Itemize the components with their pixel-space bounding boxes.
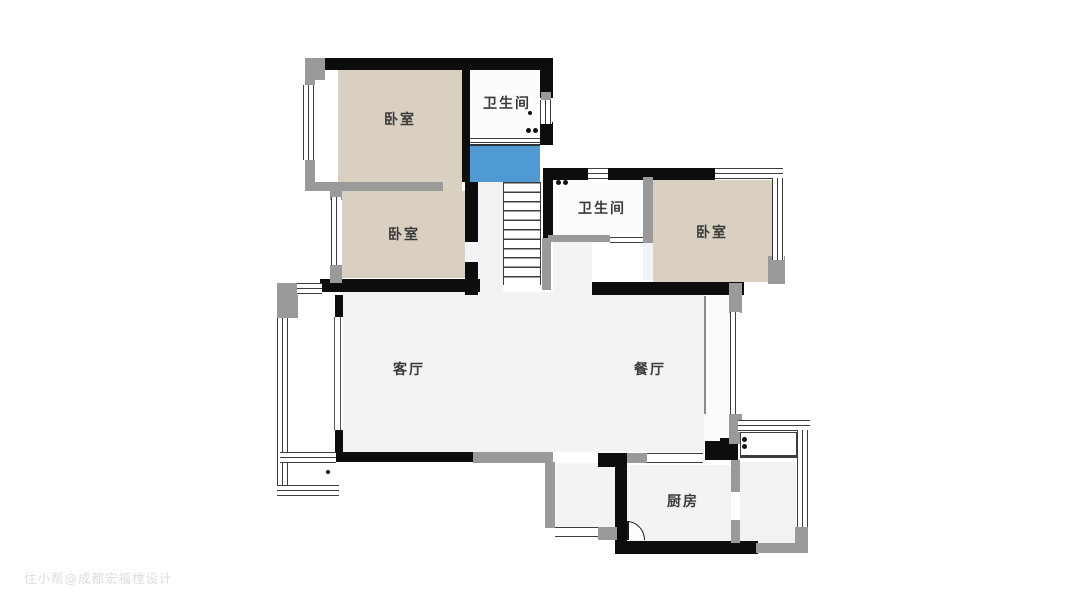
wall-segment — [305, 58, 325, 80]
balcony-divider — [280, 452, 336, 463]
window-bedroom-mid-left — [331, 197, 341, 265]
window-balcony-bottom — [277, 485, 339, 497]
dining-bay-line — [704, 296, 706, 414]
bedroom-right-door-opening — [643, 243, 653, 280]
wall-segment — [545, 462, 555, 528]
watermark: 住小帮@成都宏福樘设计 — [24, 568, 173, 587]
wall-segment — [598, 527, 617, 540]
staircase — [503, 182, 541, 285]
window-bedroom-top-left — [303, 85, 315, 160]
bedroom-door-opening — [443, 182, 462, 191]
wall-segment — [540, 122, 553, 145]
window-balcony-top — [297, 283, 322, 295]
bedroom-top-left-label: 卧室 — [384, 113, 416, 127]
wall-segment — [330, 265, 342, 283]
living-room-label: 客厅 — [393, 363, 425, 377]
utility-counter — [740, 432, 797, 458]
wall-segment — [731, 520, 740, 543]
dining-room-label: 餐厅 — [634, 363, 666, 377]
fixture-marker — [742, 437, 747, 442]
wall-segment — [756, 543, 796, 553]
door-marker — [526, 128, 531, 133]
balcony-floor-upper — [289, 295, 335, 455]
dining-window-bay-floor — [704, 295, 731, 445]
stair-landing — [470, 144, 540, 182]
wall-segment — [548, 235, 610, 242]
fixture-marker — [742, 444, 747, 449]
bathroom-top-label: 卫生间 — [483, 97, 531, 111]
wall-segment — [320, 279, 480, 292]
wall-segment — [643, 177, 653, 243]
utility-balcony-floor — [740, 462, 796, 543]
wall-segment — [335, 295, 343, 317]
wall-segment — [305, 182, 443, 191]
wall-segment — [277, 283, 298, 318]
window-balcony-side — [277, 318, 289, 490]
wall-segment — [768, 256, 785, 284]
wall-segment — [598, 453, 627, 467]
wall-segment — [322, 58, 553, 70]
window-kitchen — [647, 453, 703, 463]
bay-window-bedroom-right-side — [772, 178, 784, 260]
wall-segment — [627, 453, 647, 463]
entry-door-opening — [555, 527, 598, 537]
window-dining — [730, 312, 740, 414]
fixture-marker — [326, 470, 330, 474]
window-bathroom-mid — [588, 168, 608, 180]
wall-segment — [795, 527, 808, 553]
door-marker — [556, 180, 561, 185]
bathroom-top-partition — [470, 138, 540, 143]
window-bathroom-top — [540, 100, 552, 124]
wall-segment — [542, 238, 551, 290]
corridor-floor — [553, 242, 592, 294]
wall-segment — [465, 182, 478, 242]
wall-segment — [592, 282, 744, 295]
wall-segment — [462, 58, 470, 182]
wall-segment — [608, 168, 720, 180]
wall-segment — [729, 283, 742, 313]
wall-segment — [543, 168, 553, 242]
wall-segment — [335, 430, 343, 462]
bedroom-mid-left-label: 卧室 — [388, 228, 420, 242]
bedroom-mid-door-opening — [465, 242, 478, 262]
kitchen-label: 厨房 — [667, 495, 699, 509]
entry-floor — [555, 463, 615, 527]
wall-segment — [541, 92, 551, 100]
balcony-floor-lower — [289, 463, 333, 487]
door-marker — [533, 128, 538, 133]
window-utility-side — [797, 430, 810, 527]
wall-segment — [335, 452, 473, 462]
wall-segment — [731, 460, 740, 492]
bathroom-mid-label: 卫生间 — [578, 202, 626, 216]
wall-segment — [473, 452, 553, 463]
bathroom-mid-door-sill — [610, 237, 643, 243]
door-marker — [563, 180, 568, 185]
hallway-floor — [478, 182, 503, 295]
balcony-sliding-door — [334, 317, 341, 430]
bedroom-right-label: 卧室 — [696, 226, 728, 240]
floor-plan: 卧室 卧室 卧室 卫生间 卫生间 客厅 餐厅 厨房 住小帮@成都宏福樘设计 — [0, 0, 1080, 608]
